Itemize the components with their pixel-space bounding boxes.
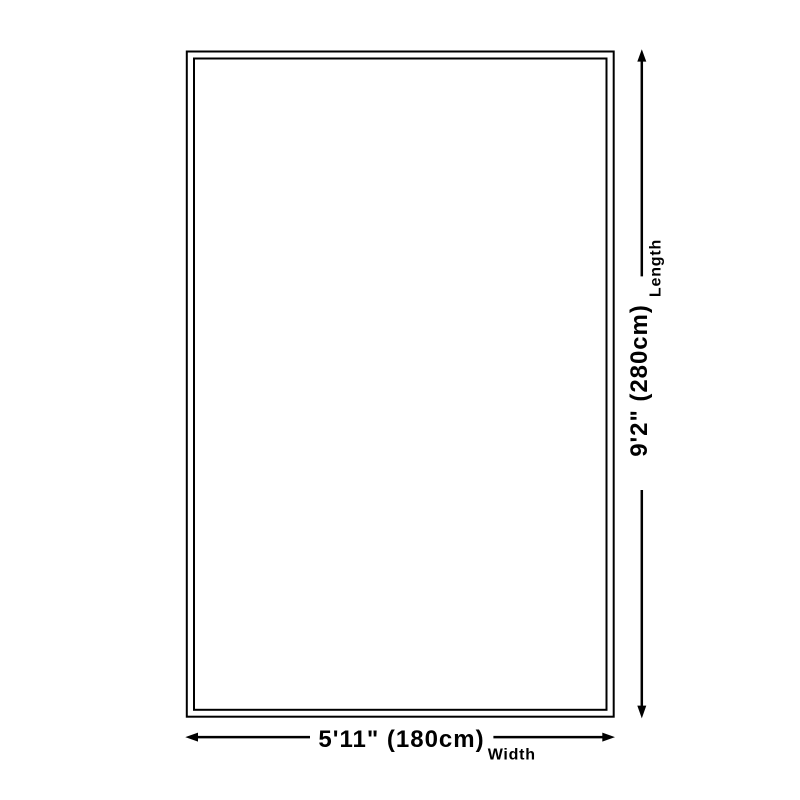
svg-text:5'11" (180cm): 5'11" (180cm) [318,726,484,753]
svg-text:9'2" (280cm): 9'2" (280cm) [626,304,653,457]
svg-text:Width: Width [488,746,536,763]
svg-text:Length: Length [648,239,665,297]
